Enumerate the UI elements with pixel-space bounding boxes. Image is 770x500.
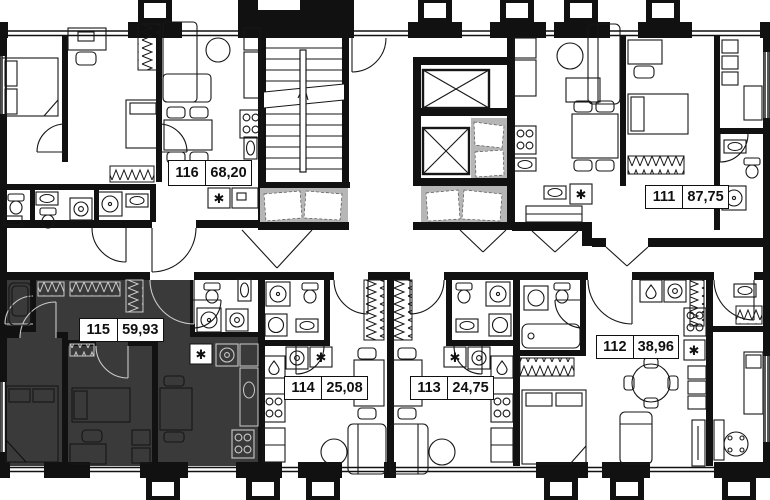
window-tab bbox=[138, 0, 680, 24]
closet-icon bbox=[70, 282, 120, 296]
unit-area: 38,96 bbox=[633, 336, 678, 358]
window-tab bbox=[146, 478, 756, 500]
unit-label-116[interactable]: 116 68,20 bbox=[168, 160, 252, 186]
unit-label-114[interactable]: 114 25,08 bbox=[284, 376, 368, 400]
closet-icon bbox=[126, 280, 143, 312]
unit-area: 25,08 bbox=[321, 377, 367, 399]
unit-number: 112 bbox=[597, 336, 633, 358]
washing-machine-icon: ✱ bbox=[190, 344, 212, 364]
floorplan-drawing: ✱ ✱ bbox=[0, 0, 770, 500]
round-table-icon bbox=[724, 432, 748, 456]
tv-stand-icon bbox=[714, 420, 724, 460]
closet-icon bbox=[70, 344, 94, 356]
unit-area: 24,75 bbox=[447, 377, 493, 399]
unit-116-region[interactable] bbox=[8, 38, 258, 220]
floorplan: ✱ ✱ bbox=[0, 0, 770, 500]
elevator-icon bbox=[423, 128, 469, 174]
unit-number: 115 bbox=[80, 319, 117, 341]
unit-number: 111 bbox=[646, 186, 682, 208]
single-bed-icon bbox=[744, 352, 763, 414]
unit-label-111[interactable]: 111 87,75 bbox=[645, 185, 729, 209]
unit-114-region[interactable] bbox=[265, 280, 387, 466]
sink-icon bbox=[734, 284, 756, 297]
unit-area: 87,75 bbox=[682, 186, 728, 208]
unit-label-112[interactable]: 112 38,96 bbox=[596, 335, 679, 359]
unit-label-113[interactable]: 113 24,75 bbox=[410, 376, 494, 400]
unit-112-region[interactable] bbox=[520, 280, 706, 466]
stairwell bbox=[264, 48, 344, 172]
unit-area: 68,20 bbox=[205, 161, 251, 185]
elevator-icon bbox=[423, 70, 489, 108]
unit-number: 116 bbox=[169, 161, 205, 185]
unit-113-region[interactable] bbox=[394, 280, 513, 466]
svg-text:✱: ✱ bbox=[196, 348, 207, 363]
unit-number: 113 bbox=[411, 377, 447, 399]
unit-area: 59,93 bbox=[117, 319, 163, 341]
radiator-icon bbox=[736, 306, 762, 324]
unit-number: 114 bbox=[285, 377, 321, 399]
unit-label-115[interactable]: 115 59,93 bbox=[79, 318, 164, 342]
